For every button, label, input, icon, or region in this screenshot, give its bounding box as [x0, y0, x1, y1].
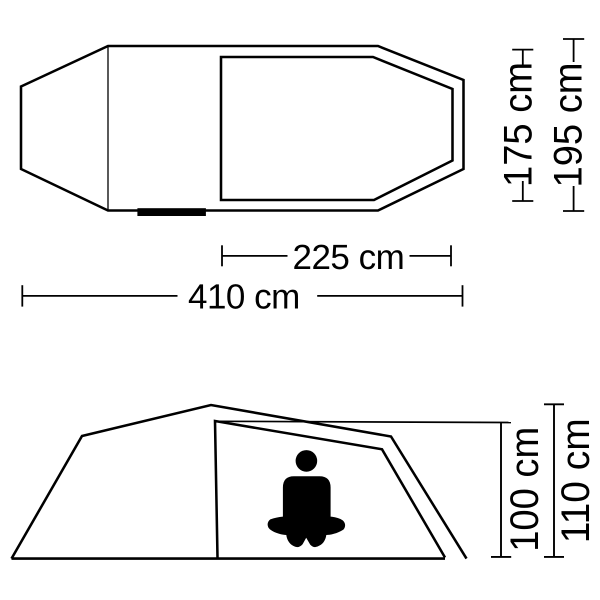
svg-text:110 cm: 110 cm: [554, 418, 598, 543]
svg-text:175 cm: 175 cm: [496, 62, 540, 187]
svg-text:195 cm: 195 cm: [547, 62, 591, 187]
svg-text:100 cm: 100 cm: [503, 427, 547, 552]
svg-text:410 cm: 410 cm: [188, 278, 300, 317]
svg-text:225 cm: 225 cm: [293, 238, 405, 277]
